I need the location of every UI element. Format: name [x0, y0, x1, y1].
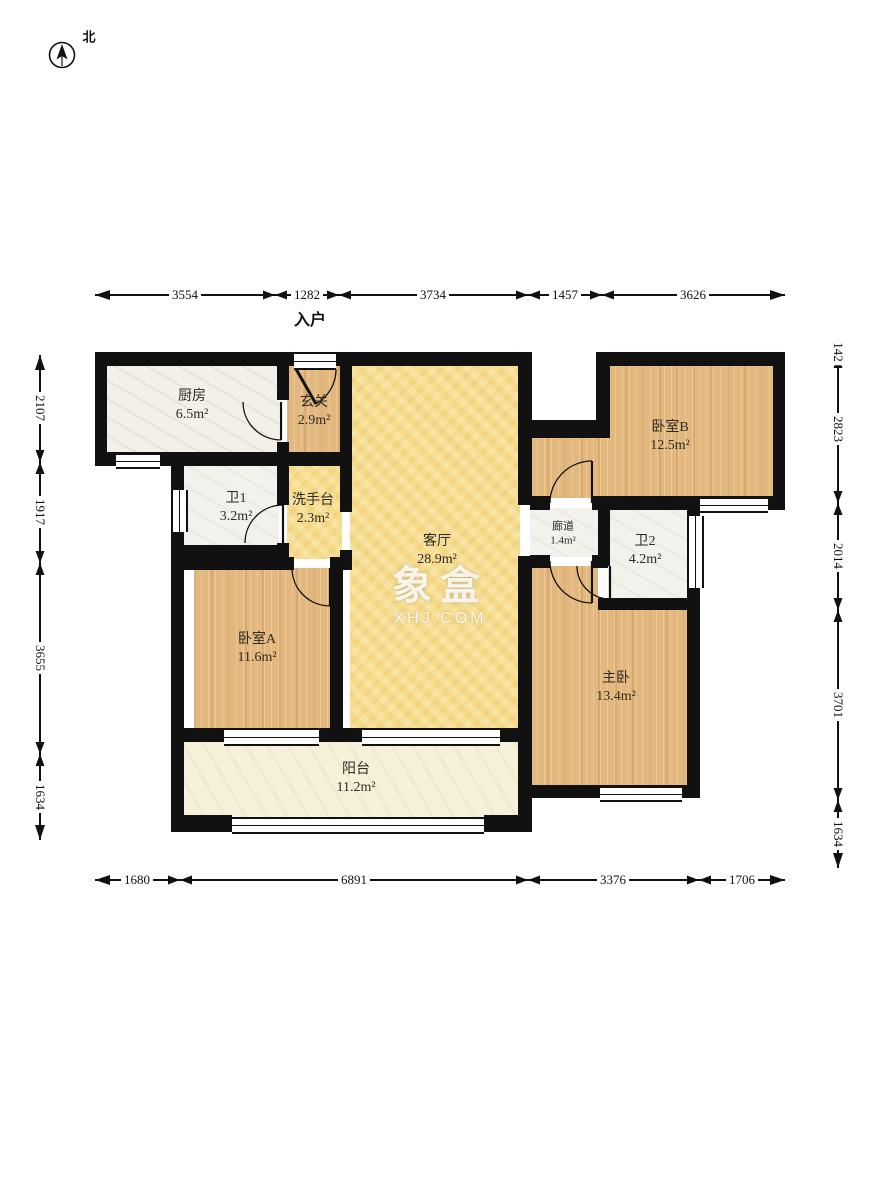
wall — [598, 510, 610, 566]
bath1-window — [171, 490, 188, 532]
dimension-label: 3655 — [33, 642, 47, 674]
room-label-bath1: 卫13.2m² — [220, 490, 253, 526]
room-label-master: 主卧13.4m² — [596, 670, 636, 706]
room-bedroomB-entry-floor — [530, 436, 610, 498]
dimension-label: 1680 — [121, 873, 153, 887]
dimension-label: 3626 — [677, 288, 709, 302]
room-label-living: 客厅28.9m² — [417, 533, 457, 569]
dimension-label: 3701 — [831, 689, 845, 721]
bath2-window — [687, 516, 704, 588]
wall — [336, 352, 518, 366]
wall — [598, 598, 700, 610]
dimension-label: 2823 — [831, 413, 845, 445]
dimension-label: 1457 — [549, 288, 581, 302]
dimension-label: 142 — [831, 339, 845, 365]
wall — [277, 352, 289, 400]
wall — [95, 352, 107, 466]
dimension-label: 3376 — [597, 873, 629, 887]
dimension-label: 6891 — [338, 873, 370, 887]
entrance-label: 入户 — [294, 306, 326, 330]
room-label-bedroomB: 卧室B12.5m² — [650, 419, 690, 455]
dimension-label: 1917 — [33, 496, 47, 528]
room-label-bedroomA: 卧室A11.6m² — [237, 631, 276, 667]
wall — [184, 545, 289, 557]
room-master-entry-floor — [530, 566, 598, 612]
dimension-label: 2014 — [831, 540, 845, 572]
compass-icon — [50, 43, 75, 68]
wall — [596, 352, 785, 366]
wall — [518, 728, 532, 818]
room-label-balcony: 阳台11.2m² — [336, 761, 375, 797]
room-label-hallway: 玄关2.9m² — [298, 394, 331, 430]
wall — [596, 352, 610, 438]
room-bedroomB-floor — [608, 364, 775, 498]
dimension-label: 1634 — [33, 781, 47, 813]
wall — [530, 496, 550, 510]
room-label-corridor: 廊道1.4m² — [550, 520, 576, 549]
bedroomA-window — [224, 728, 319, 746]
wall — [518, 420, 598, 438]
dimension-label: 3554 — [169, 288, 201, 302]
wall — [330, 557, 343, 740]
floor-plan: 象盒 XHJ.COM — [0, 0, 882, 1180]
wall — [530, 555, 550, 568]
wall — [184, 815, 232, 832]
dimension-label: 1282 — [291, 288, 323, 302]
wall — [340, 352, 352, 512]
wall — [95, 352, 294, 366]
room-label-bath2: 卫24.2m² — [629, 533, 662, 569]
wall — [484, 815, 532, 832]
room-label-kitchen: 厨房6.5m² — [176, 388, 209, 424]
master-window — [600, 786, 682, 802]
dimension-label: 2107 — [33, 392, 47, 424]
entry-door-threshold — [294, 352, 336, 370]
compass-north-label: 北 — [82, 27, 95, 46]
room-label-washstand: 洗手台2.3m² — [292, 492, 334, 528]
living-balcony-window — [362, 728, 500, 746]
balcony-window — [232, 817, 484, 834]
kitchen-window — [116, 453, 160, 469]
dimension-label: 1706 — [726, 873, 758, 887]
wall — [773, 352, 785, 510]
wall — [277, 442, 289, 466]
dimension-label: 3734 — [417, 288, 449, 302]
bedroomB-window — [700, 497, 768, 513]
dimension-label: 1634 — [831, 818, 845, 850]
wall — [184, 557, 294, 570]
wall — [277, 466, 289, 505]
wall — [518, 556, 532, 742]
